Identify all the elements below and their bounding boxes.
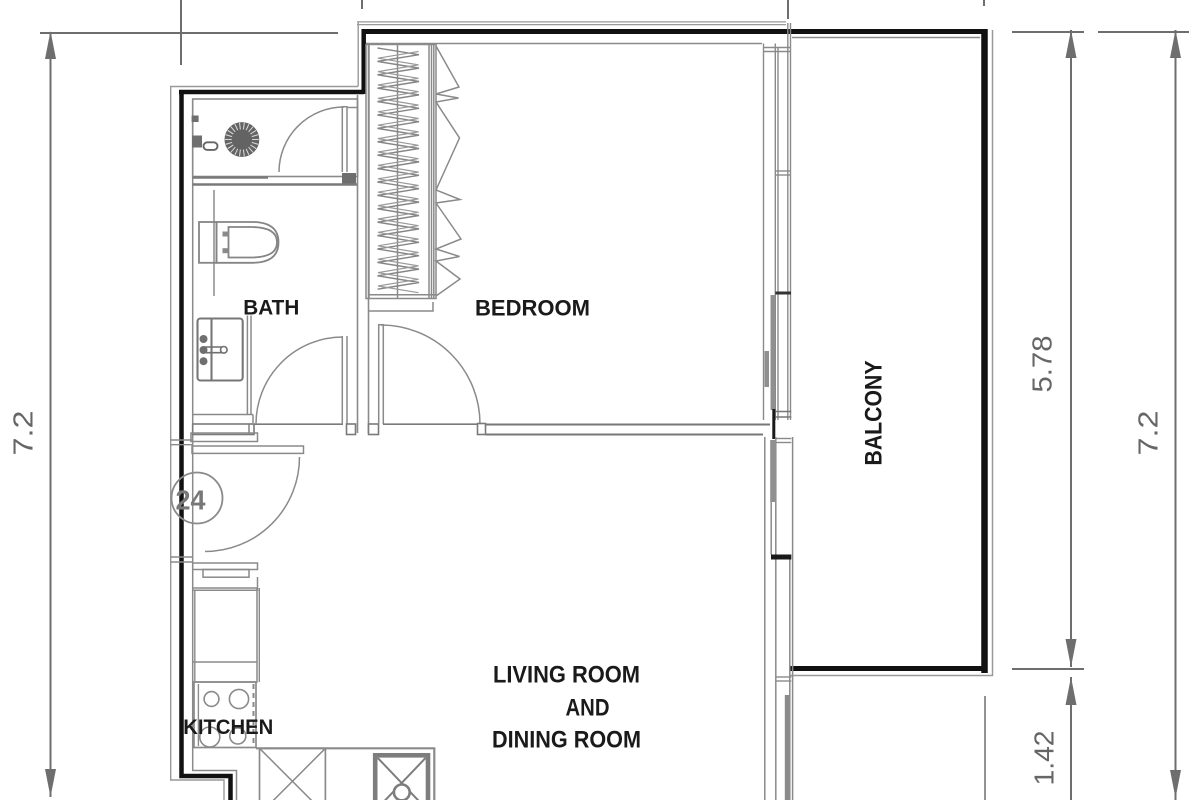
svg-text:KITCHEN: KITCHEN <box>183 716 273 739</box>
svg-text:BEDROOM: BEDROOM <box>475 296 590 321</box>
svg-text:DINING ROOM: DINING ROOM <box>492 727 641 754</box>
svg-text:7.2: 7.2 <box>8 411 39 456</box>
svg-text:AND: AND <box>566 695 610 722</box>
svg-text:LIVING ROOM: LIVING ROOM <box>493 662 640 689</box>
svg-text:5.78: 5.78 <box>1027 336 1058 393</box>
svg-text:1.42: 1.42 <box>1029 731 1060 786</box>
svg-text:BALCONY: BALCONY <box>861 361 888 466</box>
svg-text:7.2: 7.2 <box>1133 411 1164 456</box>
svg-text:24: 24 <box>176 485 206 516</box>
